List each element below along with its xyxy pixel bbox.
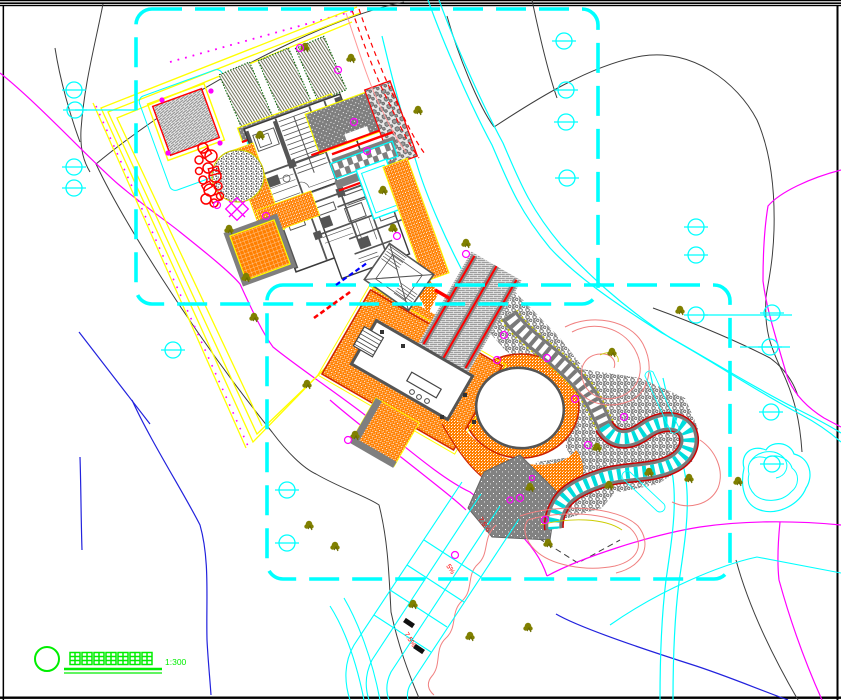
svg-text:1:300: 1:300 xyxy=(165,657,187,667)
